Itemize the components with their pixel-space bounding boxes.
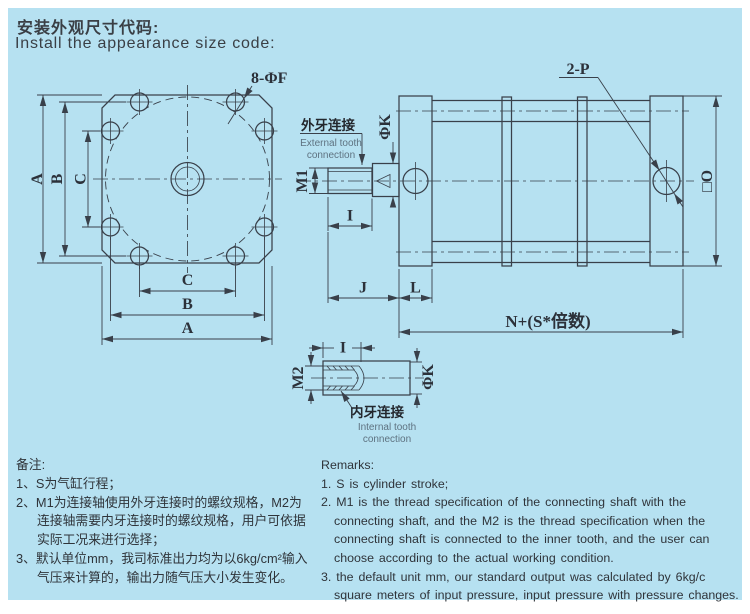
side-view: 2-P □O N+(S*倍数): [296, 61, 722, 338]
internal-conn-label-en1: Internal tooth: [358, 422, 416, 433]
dim-square-label: □O: [699, 170, 716, 192]
dim-m2-label: M2: [290, 366, 307, 389]
internal-conn-callout: 内牙连接 Internal tooth connection: [341, 391, 416, 445]
dim-phik-external-label: ΦK: [377, 114, 394, 140]
remark-line: 实际工况来进行选择；: [16, 531, 318, 550]
dim-b-bottom-label: B: [182, 296, 193, 313]
remarks-en-heading: Remarks:: [321, 456, 747, 475]
internal-tooth-detail: M2 I ΦK 内牙连接 Internal to: [290, 340, 437, 446]
dim-phik-internal: ΦK: [410, 348, 437, 408]
hole-count-label: 8-ΦF: [251, 70, 288, 87]
bolt-hole: [223, 89, 249, 115]
dim-phik-external: ΦK: [377, 114, 394, 203]
front-center-lines: [93, 85, 282, 273]
remark-line: 连接轴需要内牙连接时的螺纹规格，用户可依据: [16, 512, 318, 531]
bolt-hole: [127, 243, 153, 269]
remark-line: choose according to the actual working c…: [321, 549, 747, 568]
remark-line: 2. M1 is the thread specification of the…: [321, 493, 747, 512]
internal-conn-label-en2: connection: [363, 434, 411, 445]
bolt-hole: [252, 214, 278, 240]
internal-conn-label-zh: 内牙连接: [350, 404, 404, 420]
external-conn-label-en1: External tooth: [300, 138, 362, 149]
remarks-en: Remarks: 1. S is cylinder stroke; 2. M1 …: [321, 456, 747, 605]
remarks-zh: 备注: 1、S为气缸行程； 2、M1为连接轴使用外牙连接时的螺纹规格，M2为 连…: [16, 456, 318, 588]
bolt-hole: [127, 89, 153, 115]
bolt-hole: [252, 118, 278, 144]
dim-length: N+(S*倍数): [399, 269, 683, 338]
remark-line: 2、M1为连接轴使用外牙连接时的螺纹规格，M2为: [16, 494, 318, 513]
dim-phik-internal-label: ΦK: [420, 364, 437, 390]
dim-i-internal: I: [309, 340, 375, 363]
dim-i-internal-label: I: [340, 340, 346, 357]
port-label: 2-P: [566, 61, 589, 78]
rod-boss: [373, 164, 400, 197]
dim-a-left-label: A: [29, 173, 46, 185]
hole-count-callout: 8-ΦF: [228, 70, 288, 124]
dim-i-external: I: [328, 197, 372, 231]
dim-l-label: L: [410, 280, 421, 297]
tie-rods: [396, 101, 689, 263]
dim-length-label: N+(S*倍数): [505, 311, 590, 331]
dim-l: L: [399, 269, 432, 303]
remark-line: 3、默认单位mm，我司标准出力均为以6kg/cm²输入: [16, 550, 318, 569]
dim-c-left-label: C: [73, 173, 90, 185]
remark-line: 1、S为气缸行程；: [16, 475, 318, 494]
dim-m1-label: M1: [294, 169, 311, 192]
dim-j: J: [328, 232, 399, 303]
external-conn-callout: 外牙连接 External tooth connection: [300, 117, 362, 165]
remark-line: 3. the default unit mm, our standard out…: [321, 568, 747, 587]
dim-a-bottom-label: A: [182, 320, 194, 337]
external-conn-label-zh: 外牙连接: [301, 117, 355, 133]
external-conn-label-en2: connection: [307, 150, 355, 161]
remark-line: 1. S is cylinder stroke;: [321, 475, 747, 494]
remark-line: connecting shaft, and the M2 is the thre…: [321, 512, 747, 531]
external-tooth-detail: 外牙连接 External tooth connection M1 ΦK: [294, 114, 399, 231]
dim-i-external-label: I: [347, 208, 353, 225]
dim-b-left-label: B: [49, 173, 66, 184]
dim-c-bottom-label: C: [182, 272, 194, 289]
intermediate-plates: [502, 97, 587, 266]
bolt-hole: [223, 243, 249, 269]
remarks-zh-heading: 备注:: [16, 456, 318, 475]
front-view: 8-ΦF A B C: [29, 70, 288, 345]
dim-j-label: J: [359, 280, 367, 297]
remark-line: 气压来计算的，输出力随气压大小发生变化。: [16, 569, 318, 588]
remark-line: connecting shaft is connected to the inn…: [321, 530, 747, 549]
page: 安装外观尺寸代码: Install the appearance size co…: [0, 0, 750, 614]
remark-line: square meters of input pressure, input p…: [321, 586, 747, 605]
